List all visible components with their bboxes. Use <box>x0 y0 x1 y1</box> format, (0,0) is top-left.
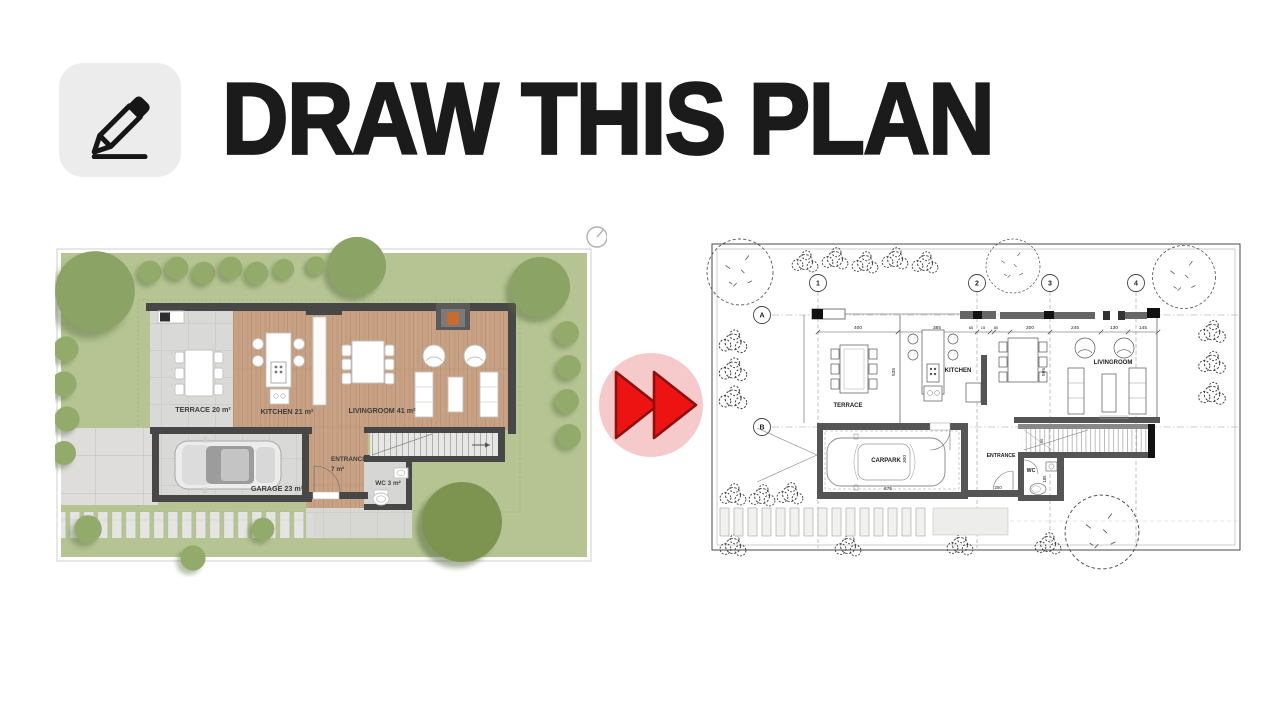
garage-label: GARAGE 23 m² <box>251 484 304 493</box>
dim-130: 130 <box>1110 325 1118 331</box>
dim-145: 145 <box>1139 325 1147 331</box>
dim-carpark-width: 675 <box>884 486 892 492</box>
pencil-icon <box>81 81 159 159</box>
grid-bubble-4: 4 <box>1134 281 1138 288</box>
dim-livingroom-depth: 595 <box>1041 368 1047 376</box>
terrace-label: TERRACE 20 m² <box>175 405 231 414</box>
thumbnail-canvas: DRAW THIS PLAN <box>0 0 1280 720</box>
entrance-label: ENTRANCE <box>331 456 367 463</box>
dim-400: 400 <box>854 325 862 331</box>
driveway <box>61 428 158 505</box>
dim-wc: 185 <box>1042 475 1047 483</box>
cad-wc-label: WC <box>1027 468 1036 474</box>
livingroom-label: LIVINGROOM 41 m² <box>348 406 416 415</box>
kitchen-partition-wall <box>313 317 326 405</box>
cad-carpark-label: CARPARK <box>871 458 901 464</box>
dim-entrance: 200 <box>994 485 1002 490</box>
rotate-handle-icon <box>587 227 607 247</box>
dim-200: 200 <box>1026 325 1034 331</box>
dim-65: 65 <box>969 325 974 330</box>
dim-carpark-depth: 300 <box>902 455 908 463</box>
dim-15: 15 <box>981 325 986 330</box>
dim-245: 245 <box>1071 325 1079 331</box>
grid-bubble-2: 2 <box>975 281 979 288</box>
grid-bubble-1: 1 <box>816 281 820 288</box>
grid-bubble-A: A <box>759 313 764 320</box>
dim-kitchen-depth: 535 <box>891 368 897 376</box>
wc-label: WC 3 m² <box>375 480 401 487</box>
fireplace <box>436 303 470 330</box>
page-title: DRAW THIS PLAN <box>222 62 993 178</box>
cad-livingroom-label: LIVINGROOM <box>1094 360 1133 366</box>
fast-forward-badge <box>592 346 710 464</box>
kitchen-label: KITCHEN 21 m² <box>261 407 314 416</box>
cad-kitchen-label: KITCHEN <box>945 368 972 374</box>
entrance-area-label: 7 m² <box>331 466 344 473</box>
cad-floor-plan: 1 2 3 4 A B 400 385 65 15 80 200 245 130 <box>700 232 1252 576</box>
cad-terrace-label: TERRACE <box>833 403 862 409</box>
pencil-icon-tile <box>59 63 181 177</box>
colored-floor-plan: TERRACE 20 m² KITCHEN 21 m² LIVINGROOM 4… <box>55 225 607 577</box>
grid-bubble-3: 3 <box>1048 281 1052 288</box>
dim-80: 80 <box>994 325 999 330</box>
staircase <box>370 433 498 456</box>
cad-staircase: 90 <box>1022 429 1148 452</box>
dim-stair: 90 <box>1039 438 1044 443</box>
cad-entrance-label: ENTRANCE <box>987 453 1016 459</box>
